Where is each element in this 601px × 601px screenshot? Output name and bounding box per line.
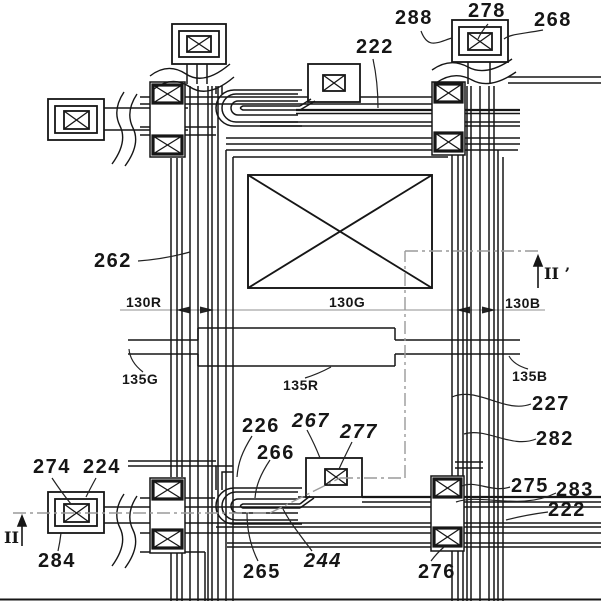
data-pad-top-right — [452, 20, 508, 62]
label-section-II: II — [4, 530, 19, 546]
tft-top — [216, 86, 315, 126]
label-278: 278 — [468, 1, 506, 21]
gate-pad-left — [48, 99, 104, 140]
label-222-top: 222 — [356, 37, 394, 57]
label-135G: 135G — [122, 372, 158, 386]
label-283: 283 — [556, 480, 594, 500]
label-226: 226 — [242, 416, 280, 436]
label-244: 244 — [304, 551, 342, 571]
label-268: 268 — [534, 10, 572, 30]
section-arrow-II — [18, 516, 26, 546]
label-275: 275 — [511, 476, 549, 496]
label-227: 227 — [532, 394, 570, 414]
label-130G: 130G — [329, 295, 365, 309]
label-282: 282 — [536, 429, 574, 449]
data-pad-top-left — [172, 24, 226, 64]
label-266: 266 — [257, 443, 295, 463]
label-224: 224 — [83, 457, 121, 477]
label-section-II-prime: II ’ — [544, 266, 570, 282]
label-130R: 130R — [126, 295, 161, 309]
patent-figure: 288 278 268 222 262 130R 130G 130B 135G … — [0, 0, 601, 601]
label-262: 262 — [94, 251, 132, 271]
label-288: 288 — [395, 8, 433, 28]
label-135R: 135R — [283, 378, 318, 392]
pixel-region — [248, 175, 432, 288]
label-274: 274 — [33, 457, 71, 477]
label-222-bottom: 222 — [548, 500, 586, 520]
label-276: 276 — [418, 562, 456, 582]
label-265: 265 — [243, 562, 281, 582]
tft-bottom — [216, 466, 314, 524]
label-267: 267 — [292, 411, 330, 431]
label-277: 277 — [340, 422, 378, 442]
label-284: 284 — [38, 551, 76, 571]
section-arrow-II-prime — [534, 256, 542, 288]
drain-pad-top — [308, 64, 360, 102]
label-130B: 130B — [505, 296, 540, 310]
label-135B: 135B — [512, 369, 547, 383]
